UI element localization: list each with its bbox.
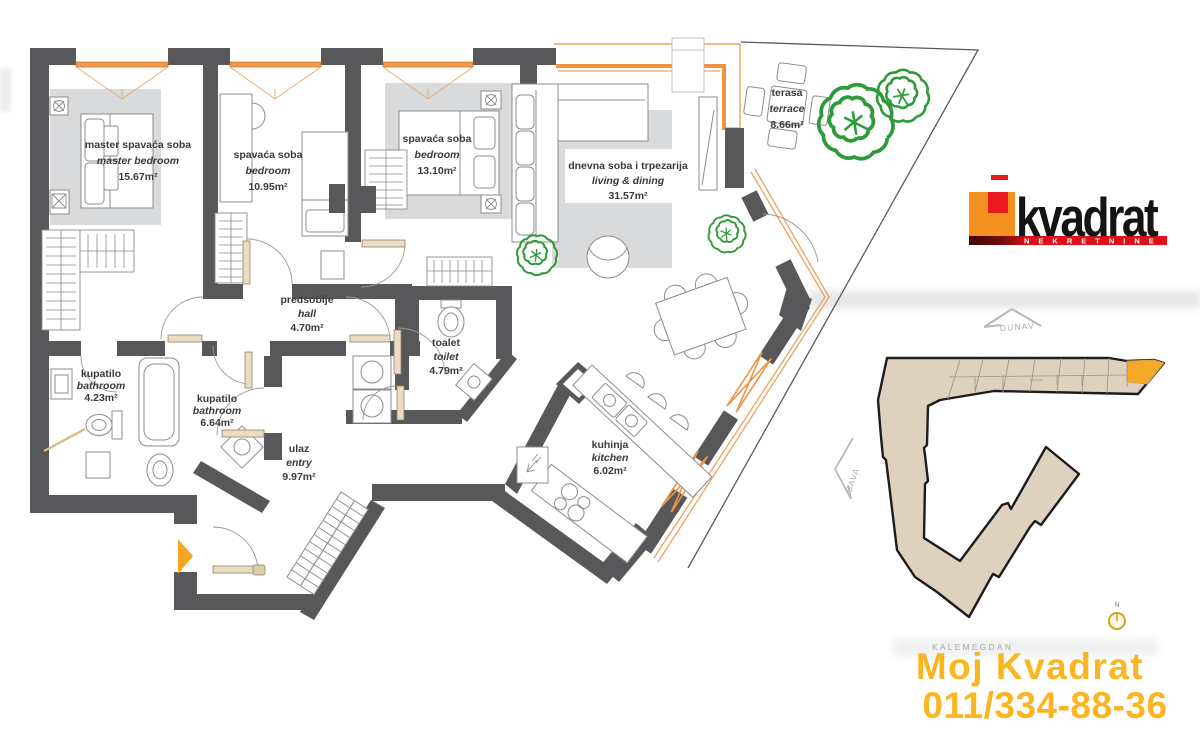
svg-text:toalet: toalet: [432, 337, 461, 349]
svg-text:bathroom: bathroom: [77, 380, 125, 392]
svg-text:bedroom: bedroom: [246, 165, 291, 177]
svg-text:8.66m²: 8.66m²: [770, 119, 804, 131]
svg-text:master spavaća soba: master spavaća soba: [85, 139, 191, 151]
svg-text:kupatilo: kupatilo: [81, 368, 121, 380]
svg-text:hall: hall: [298, 308, 317, 320]
svg-text:spavaća soba: spavaća soba: [234, 149, 303, 161]
svg-text:6.64m²: 6.64m²: [200, 417, 234, 429]
svg-text:terrace: terrace: [769, 103, 804, 115]
svg-text:4.23m²: 4.23m²: [84, 392, 118, 404]
svg-text:kuhinja: kuhinja: [592, 439, 629, 451]
svg-text:toilet: toilet: [433, 351, 459, 363]
svg-text:master bedroom: master bedroom: [97, 155, 179, 167]
svg-text:entry: entry: [286, 457, 313, 469]
svg-text:dnevna soba i trpezarija: dnevna soba i trpezarija: [568, 160, 688, 172]
svg-text:13.10m²: 13.10m²: [417, 165, 457, 177]
svg-text:011/334-88-36: 011/334-88-36: [922, 685, 1167, 726]
svg-text:kupatilo: kupatilo: [197, 393, 237, 405]
svg-text:bathroom: bathroom: [193, 405, 241, 417]
svg-text:kitchen: kitchen: [592, 452, 629, 464]
svg-text:DUNAV: DUNAV: [999, 321, 1035, 333]
svg-text:living & dining: living & dining: [592, 175, 665, 187]
svg-text:10.95m²: 10.95m²: [248, 181, 288, 193]
svg-text:31.57m²: 31.57m²: [608, 190, 648, 202]
svg-text:15.67m²: 15.67m²: [118, 171, 158, 183]
svg-text:9.97m²: 9.97m²: [282, 471, 316, 483]
svg-text:predsoblje: predsoblje: [280, 294, 333, 306]
svg-text:4.79m²: 4.79m²: [429, 365, 463, 377]
svg-text:bedroom: bedroom: [415, 149, 460, 161]
svg-text:NEKRETNINE: NEKRETNINE: [1024, 237, 1163, 246]
svg-text:6.02m²: 6.02m²: [593, 465, 627, 477]
svg-text:Moj Kvadrat: Moj Kvadrat: [916, 646, 1144, 687]
svg-text:4.70m²: 4.70m²: [290, 322, 324, 334]
svg-text:spavaća soba: spavaća soba: [403, 133, 472, 145]
svg-text:terasa: terasa: [772, 87, 803, 99]
svg-text:SAVA: SAVA: [843, 466, 861, 493]
svg-text:ulaz: ulaz: [289, 443, 309, 455]
svg-text:N: N: [1114, 602, 1119, 609]
